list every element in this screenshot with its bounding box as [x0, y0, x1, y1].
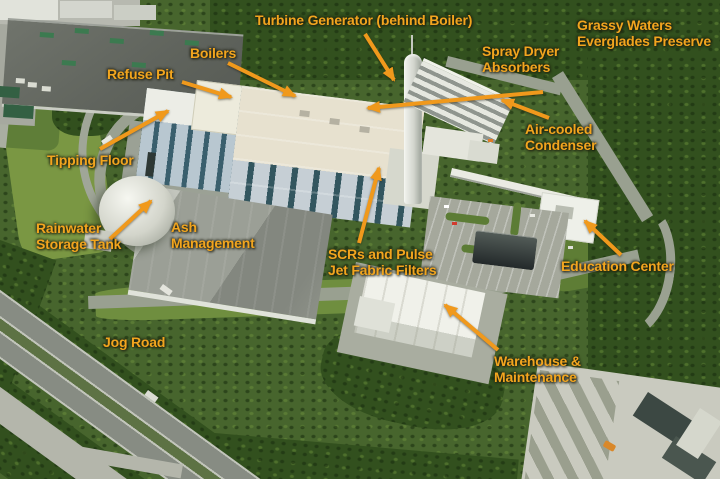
rooftop-unit — [359, 126, 370, 133]
parked-truck — [42, 86, 51, 92]
roof-skylight — [185, 40, 199, 46]
industrial-building-c — [114, 5, 156, 20]
car — [452, 222, 457, 225]
label-jog-road: Jog Road — [103, 334, 165, 350]
tank-annex — [83, 228, 114, 252]
industrial-building-a — [0, 0, 58, 20]
roof-skylight — [150, 30, 164, 36]
roof-skylight — [110, 38, 124, 44]
parked-truck — [16, 78, 25, 84]
white-annex-building — [467, 140, 499, 164]
roof-skylight — [132, 62, 146, 68]
roof-skylight — [62, 60, 76, 66]
rooftop-unit — [299, 110, 310, 117]
car — [568, 246, 573, 249]
car — [444, 205, 449, 208]
green-awning — [0, 86, 20, 98]
industrial-building-b — [60, 1, 112, 18]
aerial-photo: Turbine Generator (behind Boiler)Grassy … — [0, 0, 720, 479]
car — [488, 139, 493, 142]
roof-skylight — [75, 28, 89, 34]
green-awning — [3, 104, 34, 119]
roof-skylight — [40, 32, 54, 38]
tree-shadows-on-yard — [523, 370, 619, 479]
parked-truck — [28, 82, 37, 88]
car — [530, 214, 535, 217]
rooftop-unit — [329, 118, 340, 125]
